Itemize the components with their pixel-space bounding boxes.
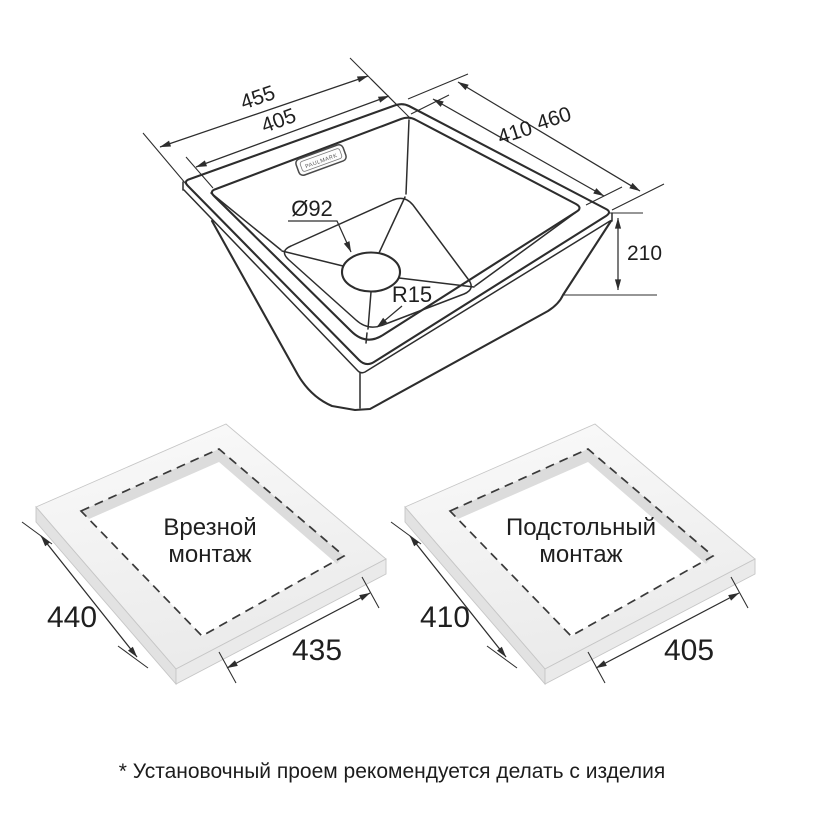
technical-drawing: PAULMARK 455 405 460 <box>0 0 831 831</box>
dim-410-cutout-label: 410 <box>420 601 470 634</box>
sink-spec-sheet: PAULMARK 455 405 460 <box>0 0 831 831</box>
dim-405-cutout-label: 405 <box>664 634 714 667</box>
dim-455-label: 455 <box>238 81 279 114</box>
inset-mount-diagram: Врезной монтаж 440 435 <box>22 424 386 684</box>
dim-460-label: 460 <box>534 102 574 135</box>
dim-405-label: 405 <box>258 104 299 138</box>
dim-210-label: 210 <box>627 242 662 265</box>
dimension-outer-depth: 460 <box>408 74 664 210</box>
sink-isometric-view: PAULMARK 455 405 460 <box>143 58 664 410</box>
bowl-crease-front <box>366 333 367 343</box>
bowl-crease-right <box>475 210 579 286</box>
dim-drain-label: Ø92 <box>291 196 333 221</box>
dim-410-label: 410 <box>495 116 535 149</box>
mount-title-line2: монтаж <box>539 541 622 568</box>
mount-title-line2: монтаж <box>168 541 251 568</box>
floor-slope-back <box>379 197 405 253</box>
dim-440-label: 440 <box>47 601 97 634</box>
dimension-height: 210 <box>562 213 662 295</box>
dimension-inner-depth: 410 <box>411 95 622 205</box>
undermount-diagram: Подстольный монтаж 410 405 <box>391 424 755 684</box>
dim-radius-label: R15 <box>392 282 432 307</box>
bowl-crease-back <box>406 120 409 194</box>
floor-slope-front <box>368 292 371 329</box>
mount-title-line1: Врезной <box>163 514 256 541</box>
floor-slope-left <box>282 251 343 266</box>
mount-title-line1: Подстольный <box>506 514 656 541</box>
footnote: * Установочный проем рекомендуется делат… <box>119 760 665 783</box>
dim-435-label: 435 <box>292 634 342 667</box>
